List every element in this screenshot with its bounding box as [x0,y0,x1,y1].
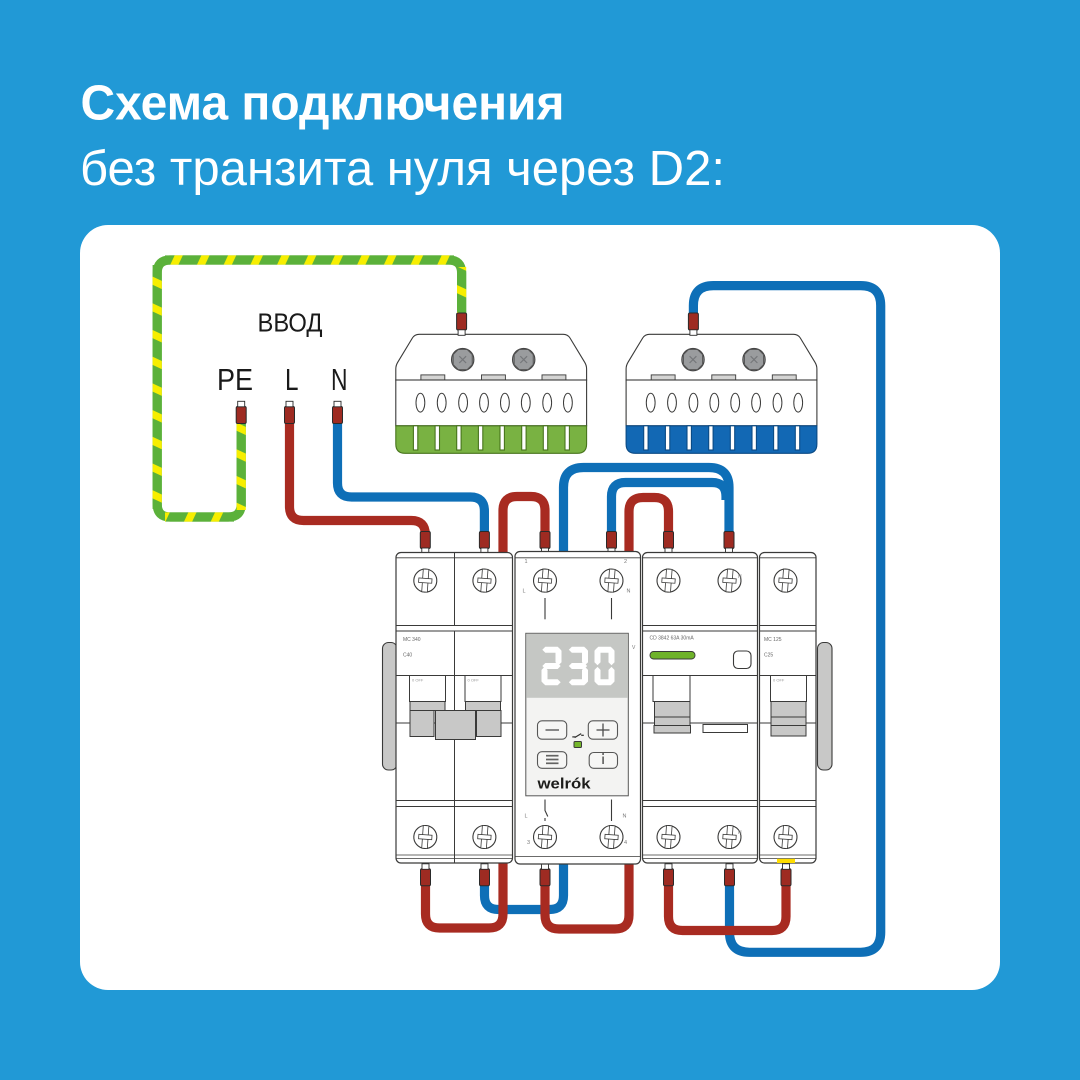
svg-text:MC 125: MC 125 [764,637,782,643]
svg-text:C25: C25 [764,653,773,659]
svg-text:L: L [285,362,299,397]
svg-text:без транзита нуля через D2:: без транзита нуля через D2: [80,141,725,196]
svg-text:ВВОД: ВВОД [258,308,323,338]
svg-text:CD 3842 63A 30mA: CD 3842 63A 30mA [650,636,695,642]
svg-text:0 OFF: 0 OFF [412,678,424,683]
svg-text:N: N [331,362,348,397]
svg-text:L: L [525,814,528,820]
svg-text:C40: C40 [403,653,412,659]
svg-text:N: N [738,574,742,580]
svg-text:MC 340: MC 340 [403,637,421,643]
svg-text:0 OFF: 0 OFF [773,678,785,683]
svg-text:N: N [738,830,742,836]
svg-text:welrók: welrók [536,777,591,793]
svg-text:PE: PE [217,362,253,397]
svg-text:0 OFF: 0 OFF [468,678,480,683]
svg-text:L: L [523,589,526,595]
svg-text:3: 3 [527,840,530,846]
svg-text:N: N [623,814,627,820]
svg-text:4: 4 [624,840,627,846]
svg-text:2: 2 [624,559,627,565]
svg-text:Схема подключения: Схема подключения [81,76,565,131]
svg-text:1: 1 [525,559,528,565]
svg-text:N: N [627,589,631,595]
